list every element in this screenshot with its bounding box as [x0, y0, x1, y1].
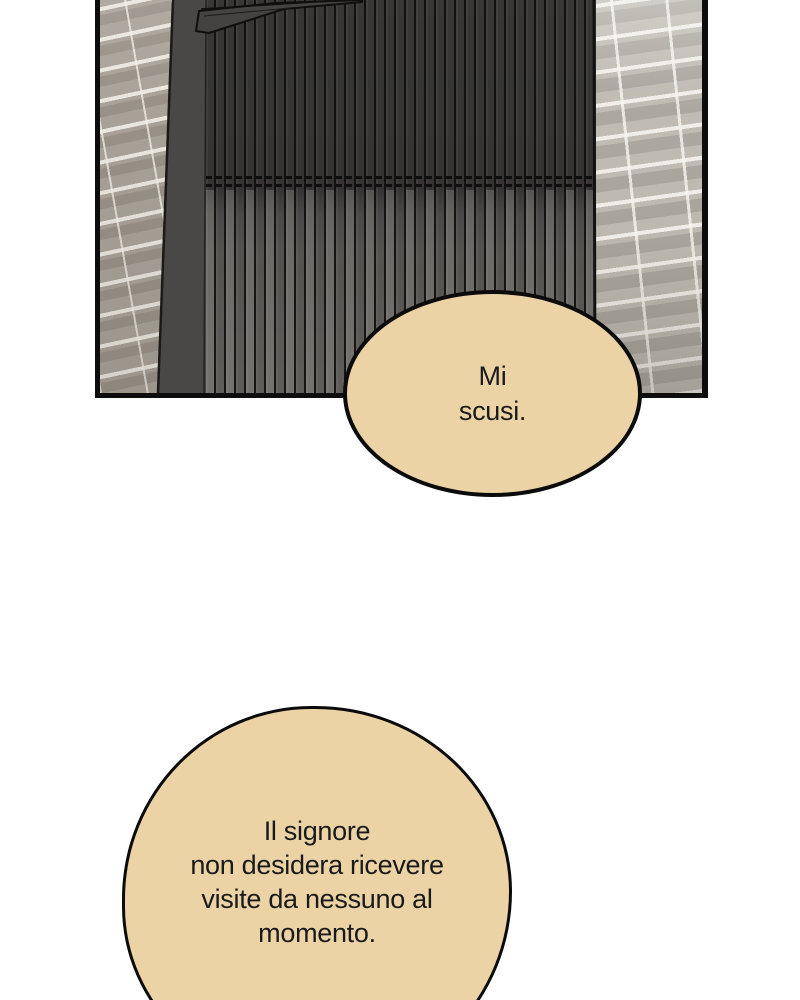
dialogue-line: Mi — [459, 359, 526, 394]
dialogue-line: non desidera ricevere — [190, 848, 443, 882]
dialogue-line: visite da nessuno al — [190, 882, 443, 916]
gate-left-seam — [204, 0, 206, 393]
gate-cap-beam — [196, 0, 362, 33]
dialogue-line: scusi. — [459, 394, 526, 429]
speech-bubble-text: Mi scusi. — [459, 359, 526, 429]
comic-page: Mi scusi. Il signore non desidera riceve… — [0, 0, 800, 1000]
speech-bubble-text: Il signore non desidera ricevere visite … — [190, 814, 443, 950]
dialogue-line: Il signore — [190, 814, 443, 848]
brick-edge-line — [158, 0, 173, 393]
speech-bubble-mi-scusi: Mi scusi. — [343, 290, 642, 497]
dialogue-line: momento. — [190, 916, 443, 950]
speech-bubble-il-signore: Il signore non desidera ricevere visite … — [122, 706, 512, 1000]
